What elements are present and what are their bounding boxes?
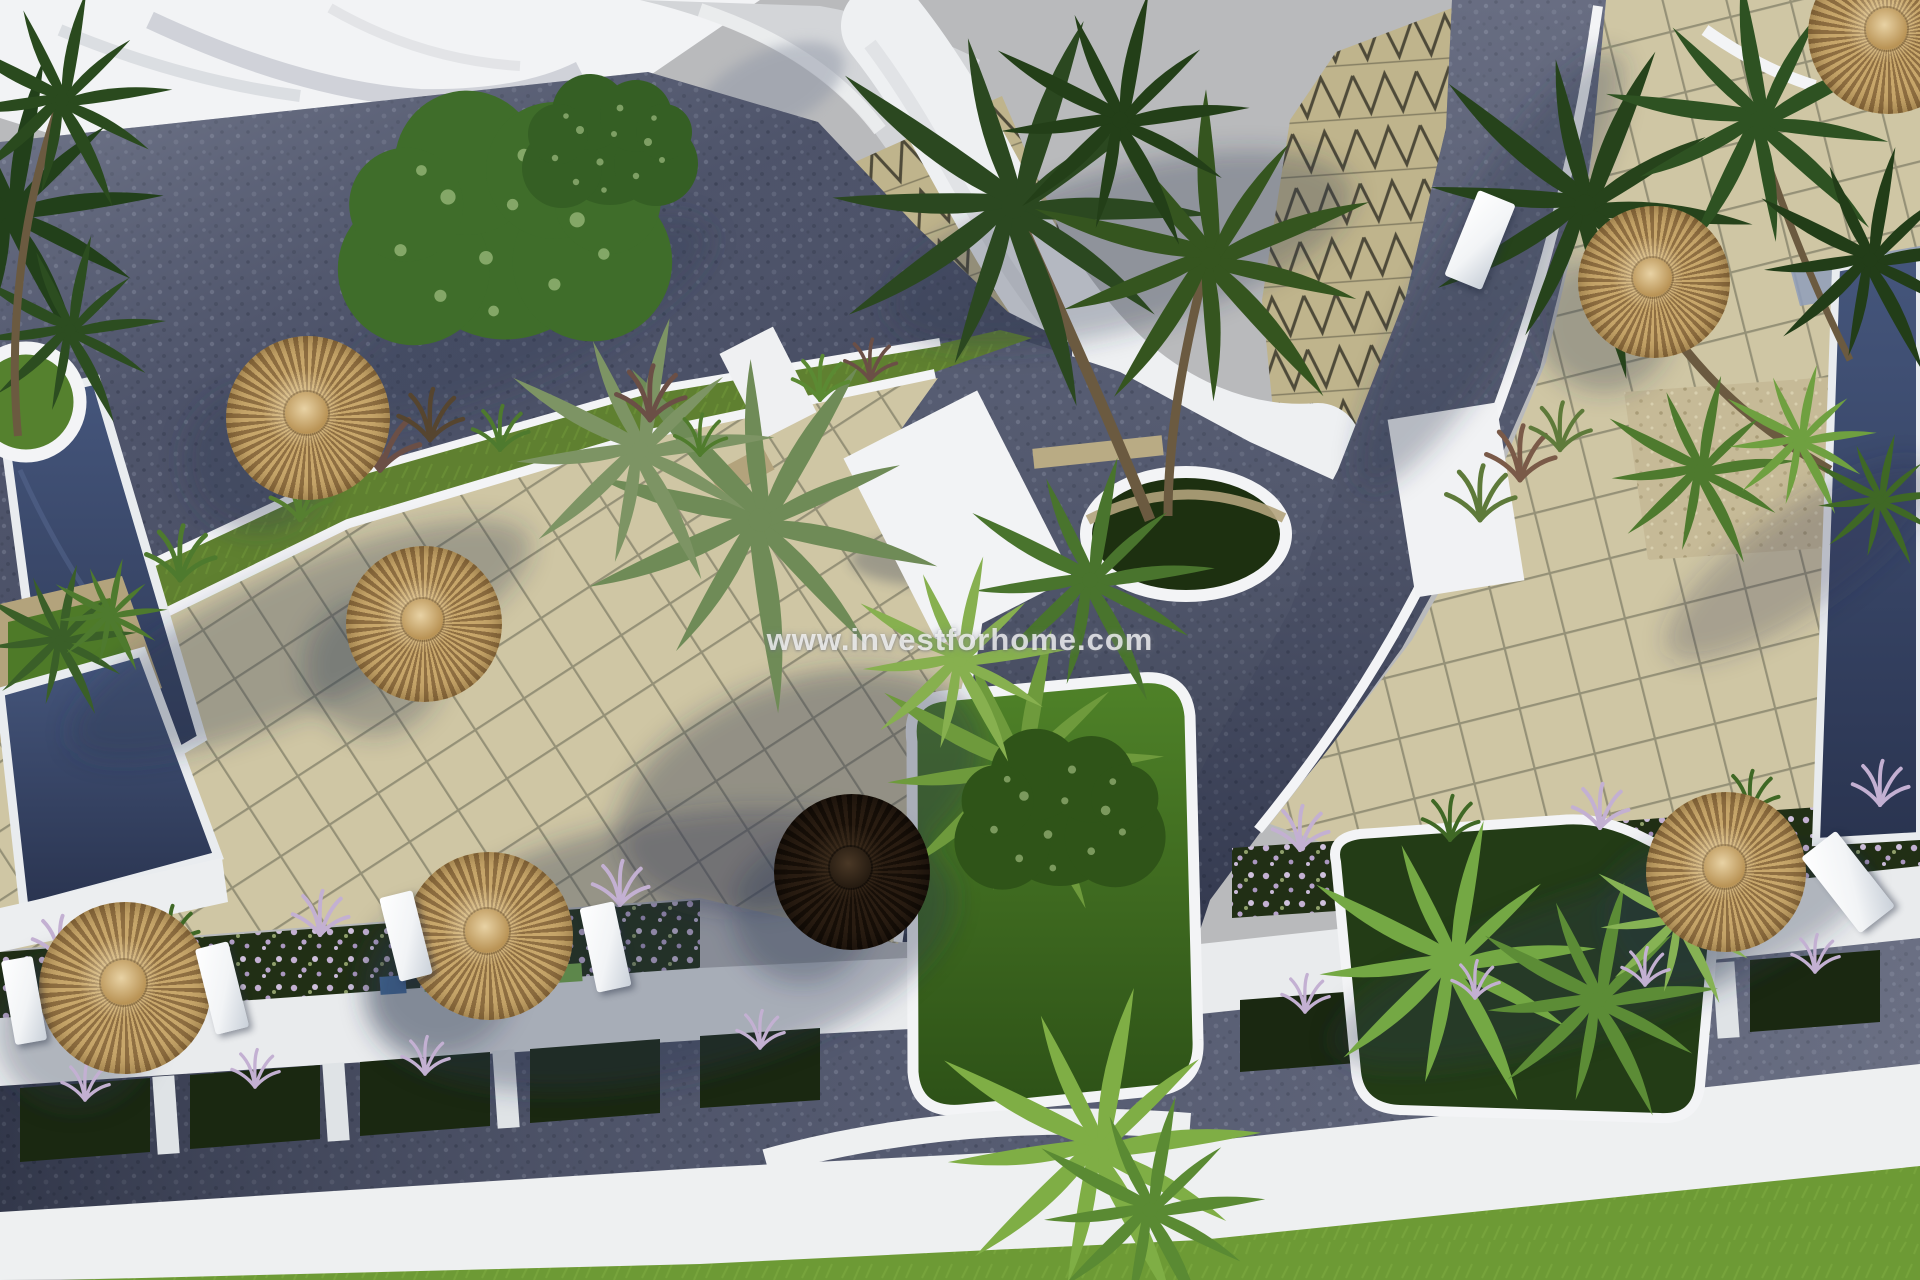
render-canvas: www.investforhome.com: [0, 0, 1920, 1280]
watermark-text: www.investforhome.com: [767, 622, 1154, 658]
straw-parasol: [346, 546, 502, 702]
straw-parasol: [226, 336, 390, 500]
straw-parasol: [1646, 792, 1806, 952]
straw-parasol: [1578, 206, 1730, 358]
dark-parasol: [774, 794, 930, 950]
straw-parasol: [405, 852, 573, 1020]
straw-parasol: [39, 902, 211, 1074]
